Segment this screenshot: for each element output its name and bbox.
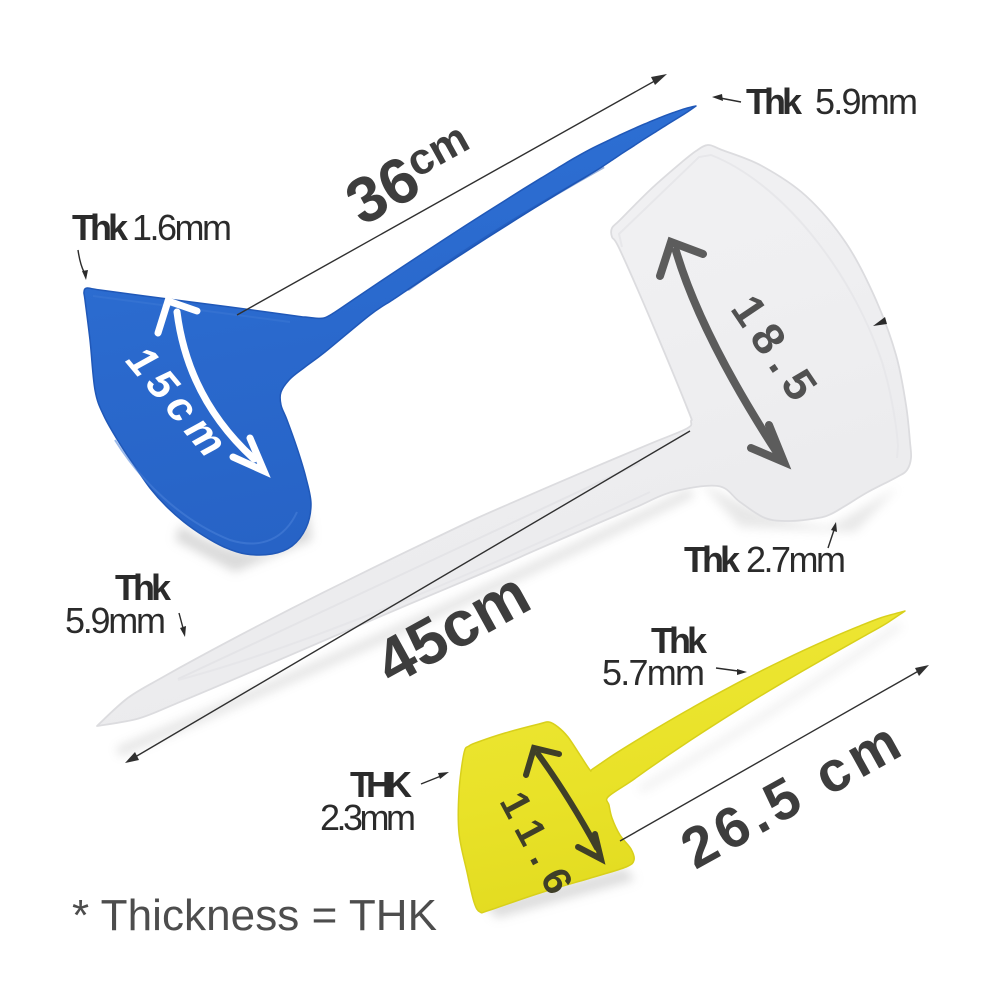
svg-text:5.7mm: 5.7mm xyxy=(602,652,705,693)
svg-text:Thk1.6mm: Thk1.6mm xyxy=(72,207,232,248)
svg-text:2.3mm: 2.3mm xyxy=(320,797,416,838)
svg-text:* Thickness = THK: * Thickness = THK xyxy=(72,891,437,940)
svg-text:5.9mm: 5.9mm xyxy=(65,600,166,641)
svg-text:Thk2.7mm: Thk2.7mm xyxy=(684,539,846,580)
svg-text:Thk5.9mm: Thk5.9mm xyxy=(746,81,918,122)
